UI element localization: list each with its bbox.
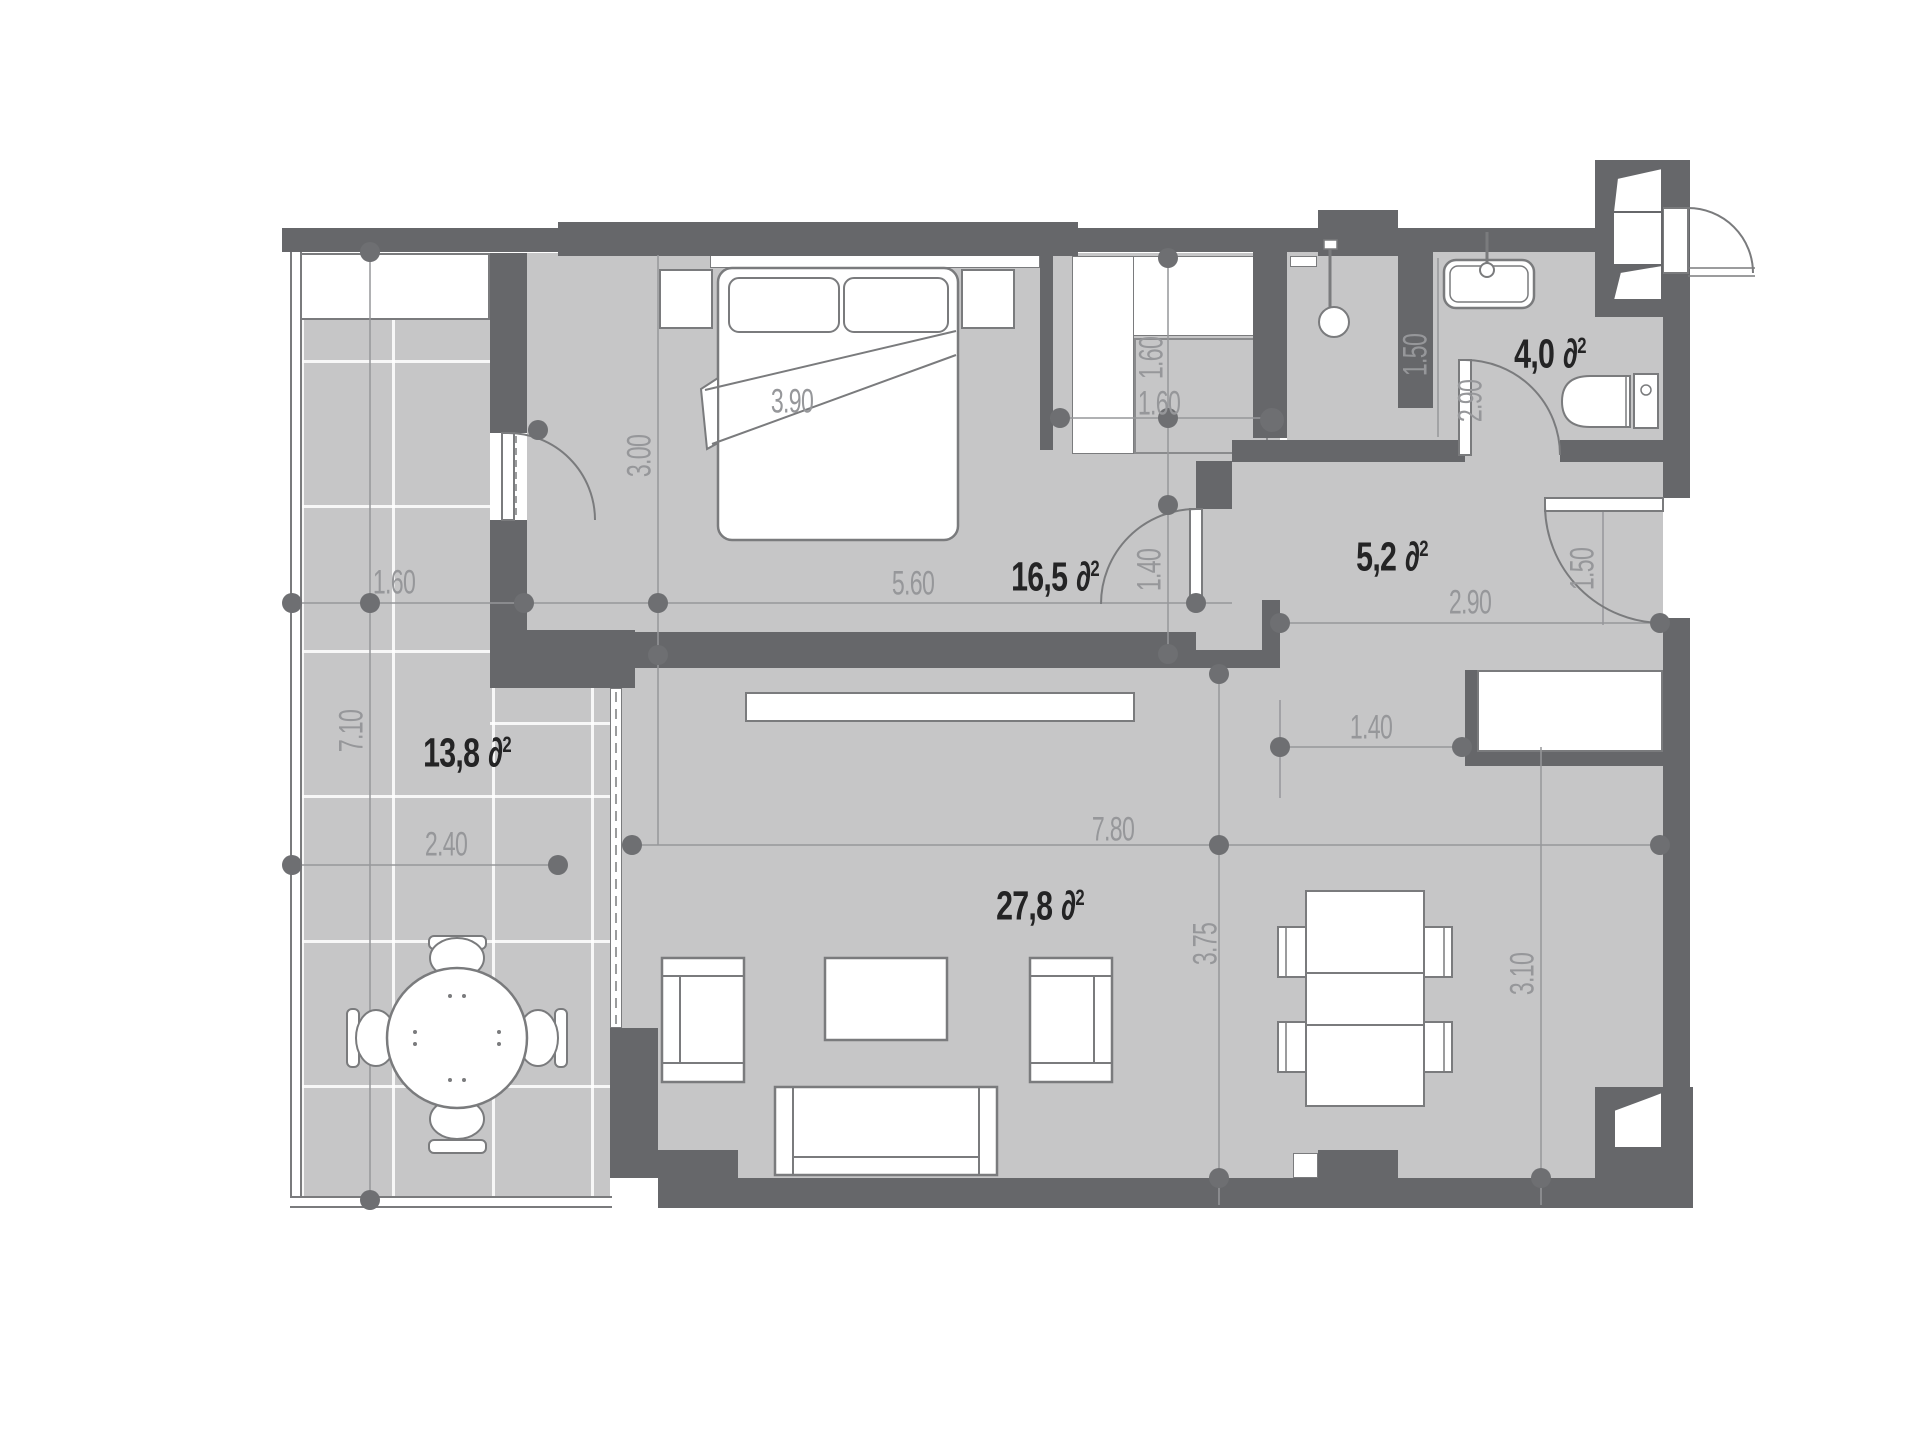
nightstand-left (660, 270, 712, 328)
vent-top-lower (1613, 265, 1662, 300)
shower-mount (1324, 240, 1337, 249)
entrance-threshold (1688, 268, 1755, 276)
toilet-bowl (1562, 376, 1630, 427)
balcony-round-table (387, 968, 527, 1108)
balcony-door-leaf (502, 433, 514, 520)
bed-pillow-right (844, 278, 948, 332)
dim-bed-width: 3.90 (771, 383, 813, 422)
vent-bottom (1614, 1092, 1662, 1148)
living-room-area-label: 27,8∂2 (996, 883, 1084, 930)
floor-plan: 1.60 7.10 2.40 3.90 3.00 5.60 1.40 1.60 … (0, 0, 1920, 1440)
dim-balcony-top-width: 1.60 (373, 564, 415, 603)
living-room-furniture (662, 958, 1112, 1175)
toilet-cistern (1634, 374, 1658, 428)
dim-balcony-length: 7.10 (333, 710, 372, 752)
apartment-door-leaf (1545, 498, 1663, 511)
balcony-chair-bottom-base (429, 1140, 486, 1153)
dim-closet-depth: 1.60 (1133, 337, 1172, 379)
dining-chair-1 (1278, 927, 1306, 977)
dim-bedroom-door-width: 1.40 (1131, 549, 1170, 591)
area-unit: ∂2 (488, 730, 511, 776)
bedroom-door-leaf (1190, 509, 1202, 604)
dim-shower-width: 1.50 (1397, 334, 1436, 376)
bathroom-area-value: 4,0 (1514, 331, 1554, 377)
dim-dining-zone-depth: 3.10 (1504, 953, 1543, 995)
sink-tap-head (1480, 263, 1494, 277)
entrance-door-arc (1688, 208, 1753, 273)
plan-drawing (0, 0, 1920, 1440)
nightstand-right (962, 270, 1014, 328)
dim-closet-width: 1.60 (1138, 385, 1180, 424)
dim-entry-door-width: 1.50 (1564, 548, 1603, 590)
hall-area-label: 5,2∂2 (1356, 534, 1428, 581)
coffee-table (825, 958, 947, 1040)
dining-chair-2 (1278, 1022, 1306, 1072)
dining-chair-3 (1424, 927, 1452, 977)
dim-bathroom-width: 2.90 (1452, 380, 1491, 422)
vent-top-middle (1613, 212, 1662, 265)
dim-balcony-width: 2.40 (425, 826, 467, 865)
sofa (775, 1087, 997, 1175)
hall-area-value: 5,2 (1356, 534, 1396, 580)
bed-pillow-left (729, 278, 839, 332)
dim-bedroom-width: 5.60 (892, 565, 934, 604)
area-unit: ∂2 (1405, 534, 1428, 580)
balcony-area-value: 13,8 (423, 730, 479, 776)
shower-head (1319, 307, 1349, 337)
area-unit: ∂2 (1061, 883, 1084, 929)
dining-table-seams (1305, 973, 1425, 1025)
dim-kitchen-unit-width: 1.40 (1350, 709, 1392, 748)
dim-living-width: 7.80 (1092, 811, 1134, 850)
balcony-area-label: 13,8∂2 (423, 730, 511, 777)
bedroom-area-label: 16,5∂2 (1011, 554, 1099, 601)
area-unit: ∂2 (1563, 331, 1586, 377)
dim-hall-width: 2.90 (1449, 584, 1491, 623)
bathroom-area-label: 4,0∂2 (1514, 331, 1586, 378)
dining-chair-4 (1424, 1022, 1452, 1072)
dim-bedroom-depth: 3.00 (621, 435, 660, 477)
living-room-area-value: 27,8 (996, 883, 1052, 929)
vent-top-upper (1613, 168, 1662, 212)
balcony-table-set (347, 936, 567, 1153)
balcony-door-arc (508, 433, 595, 520)
bed (660, 268, 1014, 540)
toilet-button (1641, 385, 1651, 395)
entrance-door-leaf (1663, 208, 1688, 273)
dining-set (1278, 927, 1452, 1072)
area-unit: ∂2 (1076, 554, 1099, 600)
bedroom-area-value: 16,5 (1011, 554, 1067, 600)
dim-living-depth: 3.75 (1187, 923, 1226, 965)
vent-shaft-symbols (1613, 168, 1662, 1148)
